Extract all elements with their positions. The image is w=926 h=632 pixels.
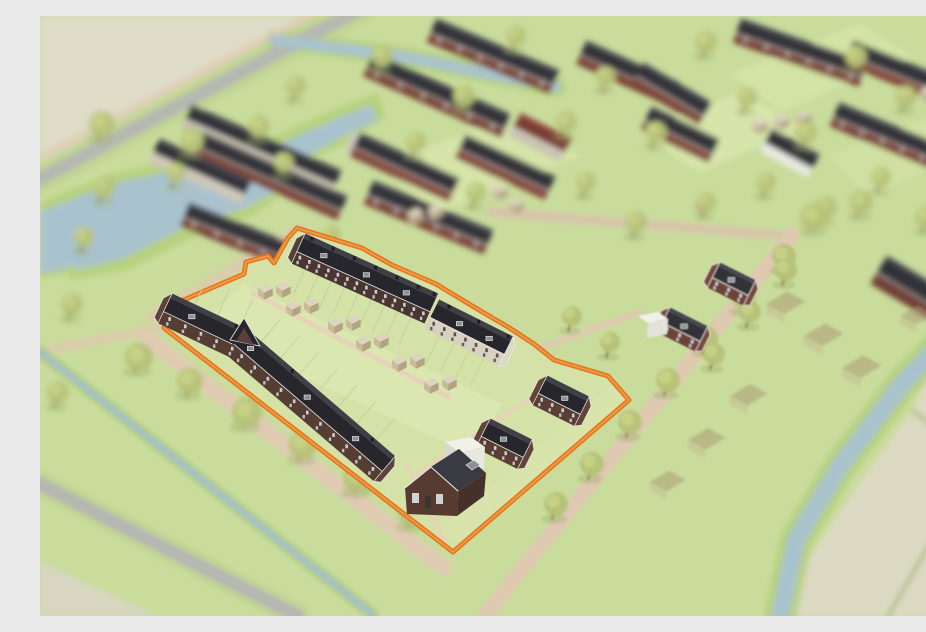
tree-shadow <box>464 203 485 211</box>
window <box>725 292 727 295</box>
tree-canopy-highlight <box>627 213 639 225</box>
window <box>515 457 518 461</box>
window <box>327 269 330 273</box>
chimney <box>395 275 398 279</box>
skylight <box>321 253 327 257</box>
window <box>280 388 283 392</box>
skylight <box>304 395 310 399</box>
window <box>359 456 362 460</box>
window <box>420 317 422 320</box>
window <box>250 370 252 373</box>
window <box>365 286 368 290</box>
tree-canopy-highlight <box>408 134 419 145</box>
window <box>561 408 564 412</box>
tree-canopy-highlight <box>698 194 709 205</box>
window <box>403 303 406 307</box>
window <box>462 343 464 346</box>
tree-canopy-highlight <box>92 114 106 128</box>
window <box>308 260 311 264</box>
window <box>737 298 739 301</box>
tree-shadow <box>869 188 890 196</box>
window <box>689 344 691 347</box>
tree-shadow <box>754 193 775 201</box>
window <box>375 290 378 294</box>
door <box>425 496 431 508</box>
window <box>303 415 305 418</box>
window <box>430 327 432 330</box>
tree-canopy-highlight <box>851 192 864 205</box>
tree-canopy-highlight <box>557 113 569 125</box>
tree-canopy-highlight <box>49 383 61 395</box>
chimney <box>332 247 335 251</box>
window <box>306 265 308 268</box>
skylight <box>363 273 369 277</box>
window <box>262 251 265 255</box>
tree-shadow <box>504 47 525 55</box>
window <box>483 441 486 445</box>
window <box>276 392 278 395</box>
skylight <box>728 278 734 282</box>
tree-canopy-highlight <box>797 123 809 135</box>
window <box>432 322 435 326</box>
window <box>422 311 425 315</box>
window <box>549 408 551 411</box>
chimney <box>234 324 237 328</box>
window <box>881 139 884 143</box>
window <box>410 312 412 315</box>
tree-shadow <box>735 108 756 116</box>
window <box>713 286 715 289</box>
window <box>475 242 478 246</box>
tree-canopy-highlight <box>250 117 262 129</box>
tree-canopy-highlight <box>582 454 595 467</box>
window <box>691 340 694 344</box>
tree-canopy-highlight <box>777 261 789 273</box>
tree-canopy-highlight <box>63 295 75 307</box>
tree-shadow <box>404 153 425 161</box>
window <box>441 332 443 335</box>
chimney <box>371 438 374 442</box>
window <box>483 353 485 356</box>
window <box>786 53 789 57</box>
window <box>502 456 504 459</box>
window <box>435 225 438 229</box>
window <box>538 403 540 406</box>
window <box>436 494 443 504</box>
tree-canopy-highlight <box>128 346 143 361</box>
window <box>240 354 243 358</box>
window <box>375 200 378 204</box>
window <box>454 332 457 336</box>
window <box>399 83 402 87</box>
window <box>496 354 499 358</box>
chimney <box>310 237 313 241</box>
window <box>229 352 231 355</box>
tree-canopy-highlight <box>546 494 559 507</box>
tree-canopy-highlight <box>373 47 385 59</box>
chimney <box>507 335 510 339</box>
window <box>329 438 331 441</box>
window <box>315 269 317 272</box>
window <box>468 114 471 118</box>
tree-canopy-highlight <box>276 154 287 165</box>
window <box>355 460 357 463</box>
tree-canopy-highlight <box>602 334 613 345</box>
window <box>807 60 810 64</box>
window <box>263 381 265 384</box>
skylight <box>189 314 195 318</box>
window <box>215 339 218 343</box>
window <box>306 411 309 415</box>
window <box>841 122 844 126</box>
window <box>541 82 544 86</box>
window <box>319 422 322 426</box>
window <box>325 274 327 277</box>
tree-canopy-highlight <box>620 412 633 425</box>
window <box>445 104 448 108</box>
window <box>551 403 554 407</box>
window <box>166 322 168 325</box>
window <box>239 241 242 245</box>
window <box>412 493 419 503</box>
tree-canopy-highlight <box>873 169 884 180</box>
tree-shadow <box>560 327 581 335</box>
window <box>334 278 336 281</box>
window <box>443 327 446 331</box>
window <box>504 451 507 455</box>
skylight <box>403 291 409 295</box>
tree-shadow <box>72 248 93 256</box>
window <box>368 471 370 474</box>
tree-canopy-highlight <box>76 229 87 240</box>
tree-canopy-highlight <box>578 174 589 185</box>
tree-canopy-highlight <box>182 130 195 143</box>
window <box>455 234 458 238</box>
window <box>200 332 203 336</box>
tree-canopy-highlight <box>697 33 709 45</box>
skylight <box>681 324 687 328</box>
window <box>861 131 864 135</box>
window <box>479 56 482 60</box>
window <box>267 377 270 381</box>
tree-canopy-highlight <box>847 47 859 59</box>
window <box>193 223 196 227</box>
tree-shadow <box>272 173 293 181</box>
tree-canopy-highlight <box>564 308 575 319</box>
window <box>413 307 416 311</box>
window <box>299 256 302 260</box>
window <box>513 462 515 465</box>
window <box>316 426 318 429</box>
chimney <box>353 256 356 260</box>
window <box>332 433 335 437</box>
window <box>344 282 346 285</box>
window <box>356 281 359 285</box>
chimney <box>374 266 377 270</box>
skylight <box>247 346 253 350</box>
window <box>384 294 387 298</box>
window <box>363 291 365 294</box>
tree-canopy-highlight <box>508 28 519 39</box>
window <box>921 156 924 160</box>
window <box>342 449 344 452</box>
window <box>739 294 742 298</box>
tree-shadow <box>284 97 305 105</box>
tree-canopy-highlight <box>758 174 769 185</box>
tree-canopy-highlight <box>739 89 750 100</box>
window <box>182 330 184 333</box>
window <box>401 308 403 311</box>
tree-canopy-highlight <box>658 370 671 383</box>
scene-svg <box>40 16 926 616</box>
window <box>337 273 340 277</box>
window <box>289 404 291 407</box>
window <box>293 399 296 403</box>
skylight <box>352 436 358 440</box>
tree-canopy-highlight <box>705 345 717 357</box>
window <box>451 338 453 341</box>
window <box>715 282 718 286</box>
window <box>492 451 494 454</box>
window <box>765 45 768 49</box>
skylight <box>562 396 568 400</box>
tree-shadow <box>598 353 619 361</box>
tree-canopy-highlight <box>774 246 787 259</box>
tree-canopy-highlight <box>803 206 818 221</box>
window <box>494 359 496 362</box>
tree-canopy-highlight <box>168 164 179 175</box>
window <box>216 232 219 236</box>
tree-canopy-highlight <box>95 178 107 190</box>
window <box>676 338 678 341</box>
tree-canopy-highlight <box>468 184 479 195</box>
window <box>472 348 474 351</box>
window <box>391 304 393 307</box>
window <box>494 446 497 450</box>
window <box>500 64 503 68</box>
window <box>849 75 852 79</box>
tree-canopy-highlight <box>288 78 299 89</box>
window <box>345 444 348 448</box>
tree-canopy-highlight <box>455 87 467 99</box>
tree-canopy-highlight <box>180 371 194 385</box>
chimney <box>477 320 480 324</box>
window <box>464 338 467 342</box>
skylight <box>456 321 462 325</box>
window <box>372 467 375 471</box>
window <box>168 317 171 321</box>
window <box>197 337 199 340</box>
chimney <box>447 305 450 309</box>
window <box>382 299 384 302</box>
window <box>520 73 523 77</box>
window <box>540 398 543 402</box>
window <box>253 366 256 370</box>
window <box>372 295 374 298</box>
window <box>491 125 494 129</box>
tree-shadow <box>594 87 615 95</box>
window <box>394 299 397 303</box>
tree-canopy-highlight <box>647 123 659 135</box>
window <box>184 325 187 329</box>
site-plan-rendering <box>40 16 926 616</box>
window <box>559 413 561 416</box>
window <box>318 264 321 268</box>
window <box>475 343 478 347</box>
window <box>570 419 572 422</box>
chimney <box>291 369 294 373</box>
window <box>213 344 215 347</box>
window <box>485 348 488 352</box>
tree-canopy-highlight <box>598 68 609 79</box>
window <box>727 288 730 292</box>
window <box>744 38 747 42</box>
window <box>353 287 355 290</box>
window <box>678 333 681 337</box>
window <box>395 209 398 213</box>
window <box>231 347 234 351</box>
tree-shadow <box>694 213 715 221</box>
window <box>422 94 425 98</box>
tree-canopy-highlight <box>897 87 909 99</box>
window <box>901 148 904 152</box>
window <box>828 67 831 71</box>
window <box>296 261 298 264</box>
tree-canopy-highlight <box>236 401 253 418</box>
window <box>572 414 575 418</box>
chimney <box>433 292 436 296</box>
skylight <box>500 437 506 441</box>
window <box>438 38 441 42</box>
chimney <box>417 285 420 289</box>
skylight <box>486 336 492 340</box>
window <box>237 359 239 362</box>
tree-shadow <box>164 183 185 191</box>
tree-shadow <box>574 193 595 201</box>
window <box>346 277 349 281</box>
window <box>459 47 462 51</box>
